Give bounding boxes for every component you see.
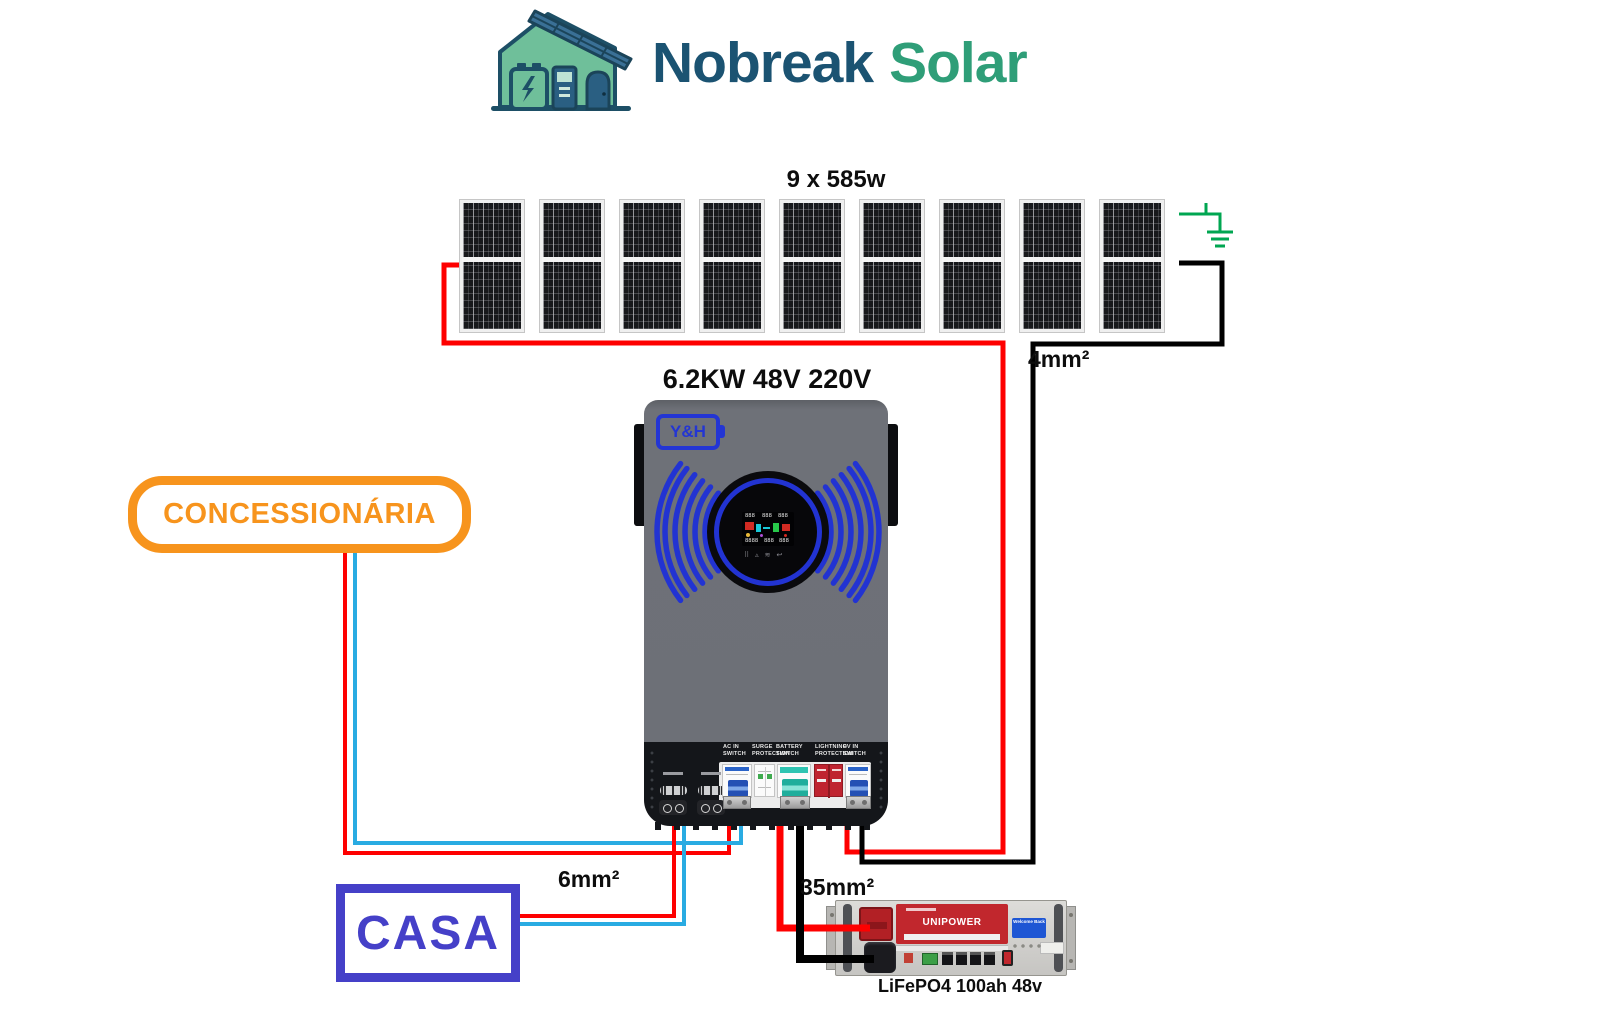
breaker-clamp: [723, 796, 751, 809]
battery-spec-strip: [896, 945, 1008, 951]
ethernet-port: [956, 952, 967, 965]
ac-outlet-group-1: [659, 800, 687, 815]
outlet-terminal-2: [698, 786, 725, 795]
utility-grid-box: CONCESSIONÁRIA: [128, 476, 471, 553]
solar-panel: [699, 199, 765, 333]
solar-panel: [459, 199, 525, 333]
ethernet-port: [970, 952, 981, 965]
display-buttons: ⠿▵≋↩: [744, 551, 794, 559]
outlet-label-1: [663, 772, 683, 775]
pv-wire-gauge-label: 4mm²: [1028, 346, 1089, 373]
switch-label: PV IN SWITCH: [843, 744, 866, 757]
solar-panel: [1099, 199, 1165, 333]
battery-brand-label: UNIPOWER: [896, 904, 1008, 944]
vent-holes-right: [879, 750, 883, 814]
brand-secondary: Solar: [889, 31, 1027, 95]
solar-panel: [1019, 199, 1085, 333]
battery-brand: UNIPOWER: [896, 917, 1008, 928]
surge-protector: [754, 764, 775, 797]
display-button-icon: ≋: [765, 551, 771, 559]
ethernet-port: [942, 952, 953, 965]
solar-panel: [779, 199, 845, 333]
house-load-box: CASA: [336, 884, 520, 982]
battery-wire-gauge-label: 35mm²: [800, 874, 874, 901]
battery-positive-terminal: [859, 907, 893, 941]
inverter-title: 6.2KW 48V 220V: [600, 364, 934, 395]
display-screen: 888 888 888 8888 888 888: [742, 512, 794, 546]
battery-connector-red: [904, 953, 913, 963]
switch-label: BATTERY SWITCH: [776, 744, 803, 757]
battery-serial-label: [1040, 942, 1064, 954]
battery-negative-terminal: [864, 942, 896, 973]
battery-handle-right: [1054, 904, 1063, 972]
brand-wordmark: NobreakSolar: [652, 30, 1027, 96]
pv-in-breaker: [845, 764, 871, 798]
solar-panel: [939, 199, 1005, 333]
brand-primary: Nobreak: [652, 31, 873, 95]
solar-panel: [859, 199, 925, 333]
battery-tag-label: Welcome Back: [1012, 918, 1046, 938]
solar-panel-row: [459, 199, 1179, 333]
battery-switch-breaker: [777, 764, 811, 798]
solar-panel: [619, 199, 685, 333]
display-button-icon: ⠿: [744, 551, 749, 559]
breaker-clamp: [846, 796, 871, 809]
display-button-icon: ▵: [755, 551, 759, 559]
solar-panel: [539, 199, 605, 333]
switch-label: AC IN SWITCH: [723, 744, 746, 757]
utility-grid-label: CONCESSIONÁRIA: [163, 498, 436, 531]
house-load-label: CASA: [356, 906, 500, 961]
solar-wiring-diagram: NobreakSolar 9 x 585w 4mm² 6.2KW 48V 220…: [0, 0, 1600, 1010]
battery-handle-left: [843, 904, 852, 972]
battery-power-switch: [1002, 950, 1013, 966]
wire-ground-lead: [1179, 214, 1220, 232]
inverter-cable-glands: [655, 822, 877, 830]
outlet-label-2: [701, 772, 721, 775]
ac-outlet-group-2: [697, 800, 725, 815]
battery-unit: UNIPOWER Welcome Back: [826, 898, 1076, 978]
pv-array-label: 9 x 585w: [700, 166, 972, 194]
battery-caption: LiFePO4 100ah 48v: [810, 976, 1110, 997]
breaker-clamp: [780, 796, 810, 809]
ethernet-port: [984, 952, 995, 965]
battery-led-indicators: [1012, 944, 1042, 948]
vent-holes-left: [650, 750, 654, 814]
ac-in-breaker: [722, 764, 752, 798]
ac-wire-gauge-label: 6mm²: [558, 866, 619, 893]
lightning-protector: [814, 764, 843, 797]
battery-green-terminal: [922, 953, 938, 965]
display-button-icon: ↩: [777, 551, 783, 559]
house-logo-icon: [485, 3, 635, 118]
outlet-terminal-1: [660, 786, 687, 795]
